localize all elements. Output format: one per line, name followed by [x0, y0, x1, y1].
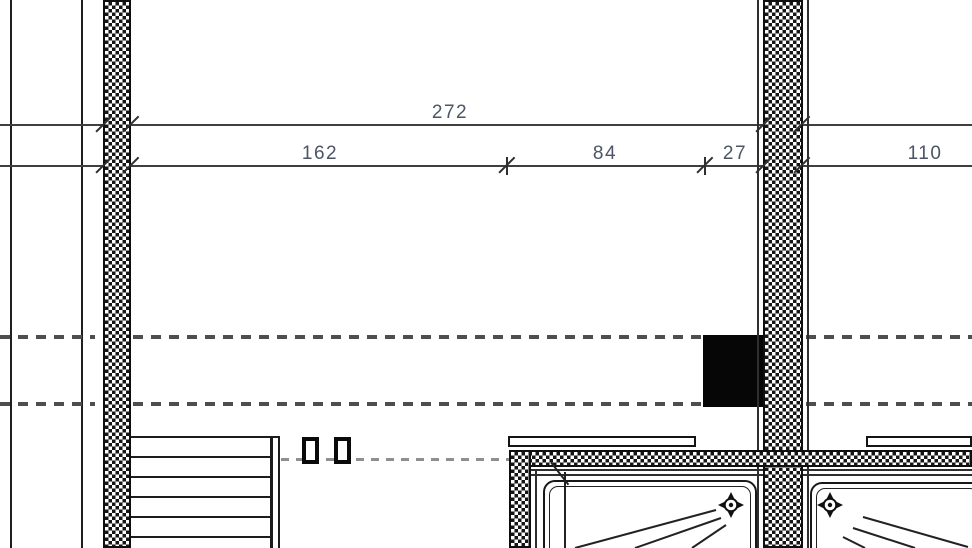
left-inner-boundary-line — [81, 0, 83, 548]
lintel-left — [508, 436, 696, 447]
stair-tread — [131, 516, 270, 518]
axis-dash-upper-right — [806, 335, 972, 339]
dim-label-seg-left: 162 — [302, 144, 338, 163]
dim-label-seg-right: 110 — [908, 144, 943, 163]
axis-dash-upper-middle — [133, 335, 703, 339]
dimension-line-segments — [0, 165, 972, 167]
stair-tread — [131, 496, 270, 498]
axis-dash-lower-right — [806, 402, 972, 406]
chimney-block — [703, 335, 771, 407]
room-left-inner-face-line — [535, 469, 537, 548]
stair-tread — [131, 436, 280, 438]
dimension-line-total — [0, 124, 972, 126]
dim-label-total: 272 — [432, 103, 468, 122]
axis-dash-lower-left — [0, 402, 95, 406]
room-left-inner-face-line — [531, 469, 763, 471]
crosshair-drain-icon — [716, 490, 746, 520]
crosshair-drain-icon — [815, 490, 845, 520]
wall-bottom-horizontal — [509, 450, 972, 467]
dim-label-seg-small: 27 — [723, 144, 747, 163]
floor-plan-canvas: 272 162 84 27 110 — [0, 0, 972, 548]
stair-stringer-line — [278, 436, 281, 548]
room-right-inner-face-line — [803, 474, 972, 476]
wall-bottom-left-stub — [509, 450, 531, 548]
door-jamb-post — [334, 437, 351, 464]
door-jamb-post — [302, 437, 319, 464]
wall-left-vertical — [103, 0, 131, 548]
stair-stringer-line — [270, 436, 273, 548]
dim-label-seg-mid: 84 — [593, 144, 617, 163]
left-outer-boundary-line — [10, 0, 12, 548]
axis-dash-upper-left — [0, 335, 95, 339]
stair-tread — [131, 536, 270, 538]
lintel-right — [866, 436, 972, 447]
axis-dash-lower-middle — [133, 402, 703, 406]
stair-tread — [131, 476, 270, 478]
room-right-inner-face-line — [803, 469, 972, 471]
stair-tread — [131, 456, 270, 458]
